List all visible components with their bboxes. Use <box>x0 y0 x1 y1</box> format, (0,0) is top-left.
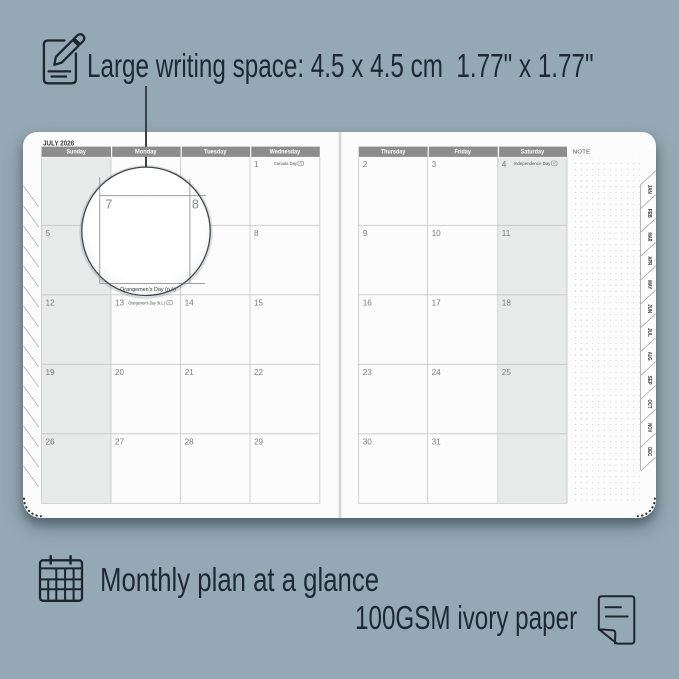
svg-text:1: 1 <box>254 160 259 169</box>
svg-text:29: 29 <box>254 438 264 447</box>
svg-text:9: 9 <box>363 229 368 238</box>
svg-text:Independence Day: Independence Day <box>514 161 551 166</box>
svg-text:Monday: Monday <box>135 150 157 156</box>
svg-text:26: 26 <box>46 438 56 447</box>
svg-text:DEC: DEC <box>646 447 652 456</box>
svg-text:23: 23 <box>363 368 373 377</box>
svg-text:21: 21 <box>185 368 195 377</box>
svg-text:OCT: OCT <box>646 400 652 409</box>
svg-text:12: 12 <box>46 299 56 308</box>
svg-text:Thursday: Thursday <box>381 150 406 156</box>
svg-text:11: 11 <box>502 229 511 238</box>
svg-text:APR: APR <box>646 256 652 265</box>
svg-text:4: 4 <box>502 160 507 169</box>
svg-text:Orangemen's Day (N.L.): Orangemen's Day (N.L.) <box>128 301 165 306</box>
svg-text:14: 14 <box>185 299 195 308</box>
svg-text:MAR: MAR <box>646 233 652 242</box>
svg-text:10: 10 <box>432 229 442 238</box>
svg-text:8: 8 <box>254 229 259 238</box>
svg-text:5: 5 <box>46 229 51 238</box>
svg-text:16: 16 <box>363 299 373 308</box>
svg-text:27: 27 <box>115 438 125 447</box>
svg-text:NOV: NOV <box>646 423 652 433</box>
svg-text:18: 18 <box>502 299 512 308</box>
svg-text:3: 3 <box>432 160 437 169</box>
svg-text:JUL: JUL <box>646 328 652 337</box>
svg-text:NOTE: NOTE <box>573 149 591 155</box>
svg-text:AUG: AUG <box>646 352 652 361</box>
svg-text:SEP: SEP <box>646 376 652 386</box>
svg-text:15: 15 <box>254 299 264 308</box>
svg-text:20: 20 <box>115 368 125 377</box>
svg-text:30: 30 <box>363 438 373 447</box>
svg-text:Sunday: Sunday <box>66 150 86 156</box>
svg-text:7: 7 <box>105 198 112 212</box>
svg-text:Tuesday: Tuesday <box>204 150 227 156</box>
svg-text:24: 24 <box>432 368 442 377</box>
svg-text:Canada Day: Canada Day <box>274 161 298 166</box>
svg-text:13: 13 <box>115 299 125 308</box>
svg-text:MAY: MAY <box>646 280 652 290</box>
svg-text:22: 22 <box>254 368 264 377</box>
svg-text:Friday: Friday <box>454 150 471 156</box>
svg-text:8: 8 <box>192 198 199 212</box>
svg-text:Wednesday: Wednesday <box>270 150 301 156</box>
svg-text:25: 25 <box>502 368 512 377</box>
svg-text:28: 28 <box>185 438 195 447</box>
svg-text:JULY 2026: JULY 2026 <box>43 138 74 147</box>
svg-text:JAN: JAN <box>646 185 652 194</box>
svg-text:Saturday: Saturday <box>521 150 545 156</box>
svg-text:FEB: FEB <box>646 209 652 218</box>
svg-text:17: 17 <box>432 299 442 308</box>
svg-text:31: 31 <box>432 438 442 447</box>
svg-text:19: 19 <box>46 368 56 377</box>
svg-text:2: 2 <box>363 160 368 169</box>
svg-text:JUN: JUN <box>646 304 652 313</box>
